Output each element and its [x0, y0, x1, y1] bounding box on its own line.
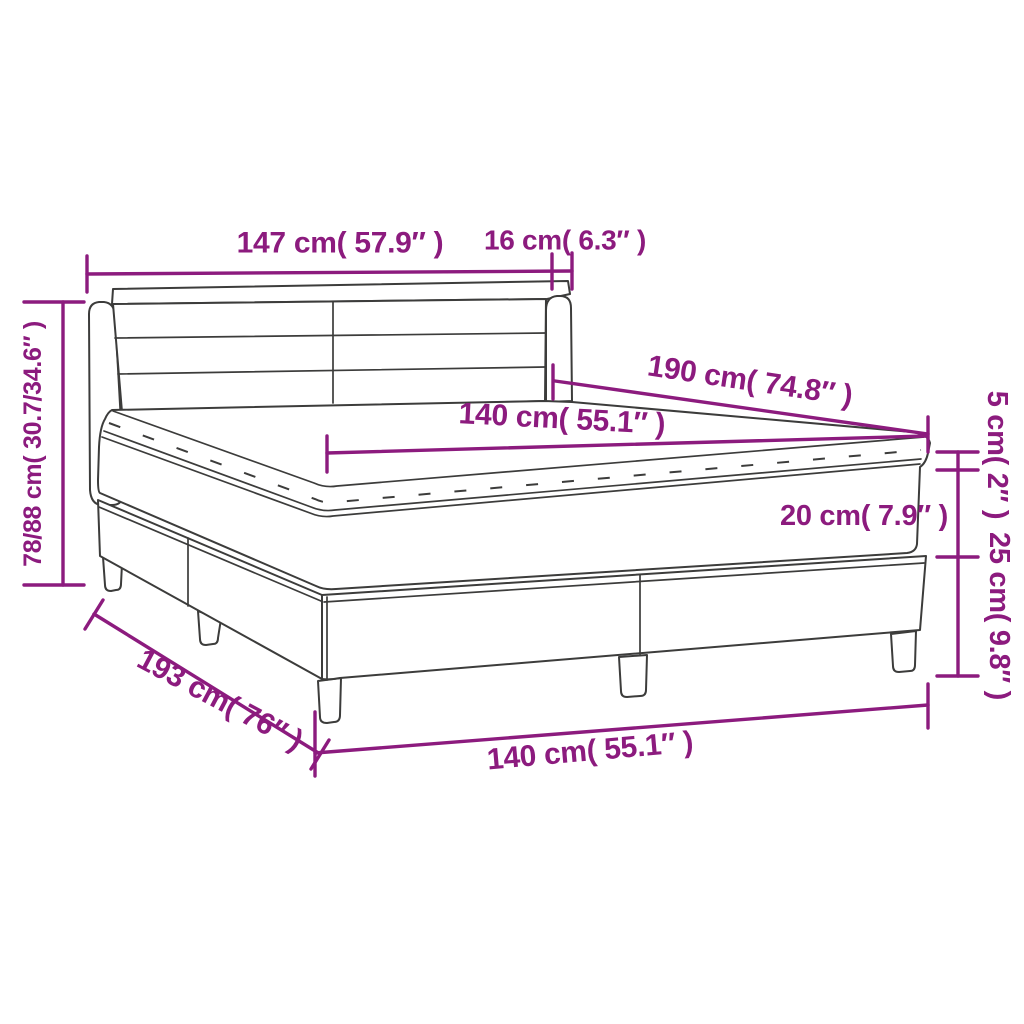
headboard-right-post	[546, 296, 572, 402]
label-side-wing-width: 16 cm( 6.3″ )	[484, 225, 646, 256]
label-overall-length: 193 cm( 76″ )	[132, 643, 308, 758]
label-headboard-width: 147 cm( 57.9″ )	[237, 227, 444, 260]
dim-tick	[85, 600, 103, 629]
headboard-face	[113, 299, 546, 412]
label-base-height: 25 cm( 9.8″ )	[983, 532, 1015, 700]
label-overall-height: 78/88 cm( 30.7/34.6″ )	[19, 321, 47, 567]
leg	[891, 631, 916, 672]
label-mattress-height: 20 cm( 7.9″ )	[780, 500, 948, 532]
label-mattress-length: 190 cm( 74.8″ )	[645, 349, 854, 412]
label-base-width: 140 cm( 55.1″ )	[486, 726, 695, 777]
diagram-canvas: 147 cm( 57.9″ ) 16 cm( 6.3″ ) 78/88 cm( …	[0, 0, 1024, 1024]
leg	[318, 678, 341, 723]
label-topper-height: 5 cm( 2″ )	[981, 391, 1013, 520]
bed-dimension-diagram: 147 cm( 57.9″ ) 16 cm( 6.3″ ) 78/88 cm( …	[0, 0, 1024, 1024]
dim-line-headboard-width	[87, 271, 572, 274]
leg	[619, 655, 647, 697]
